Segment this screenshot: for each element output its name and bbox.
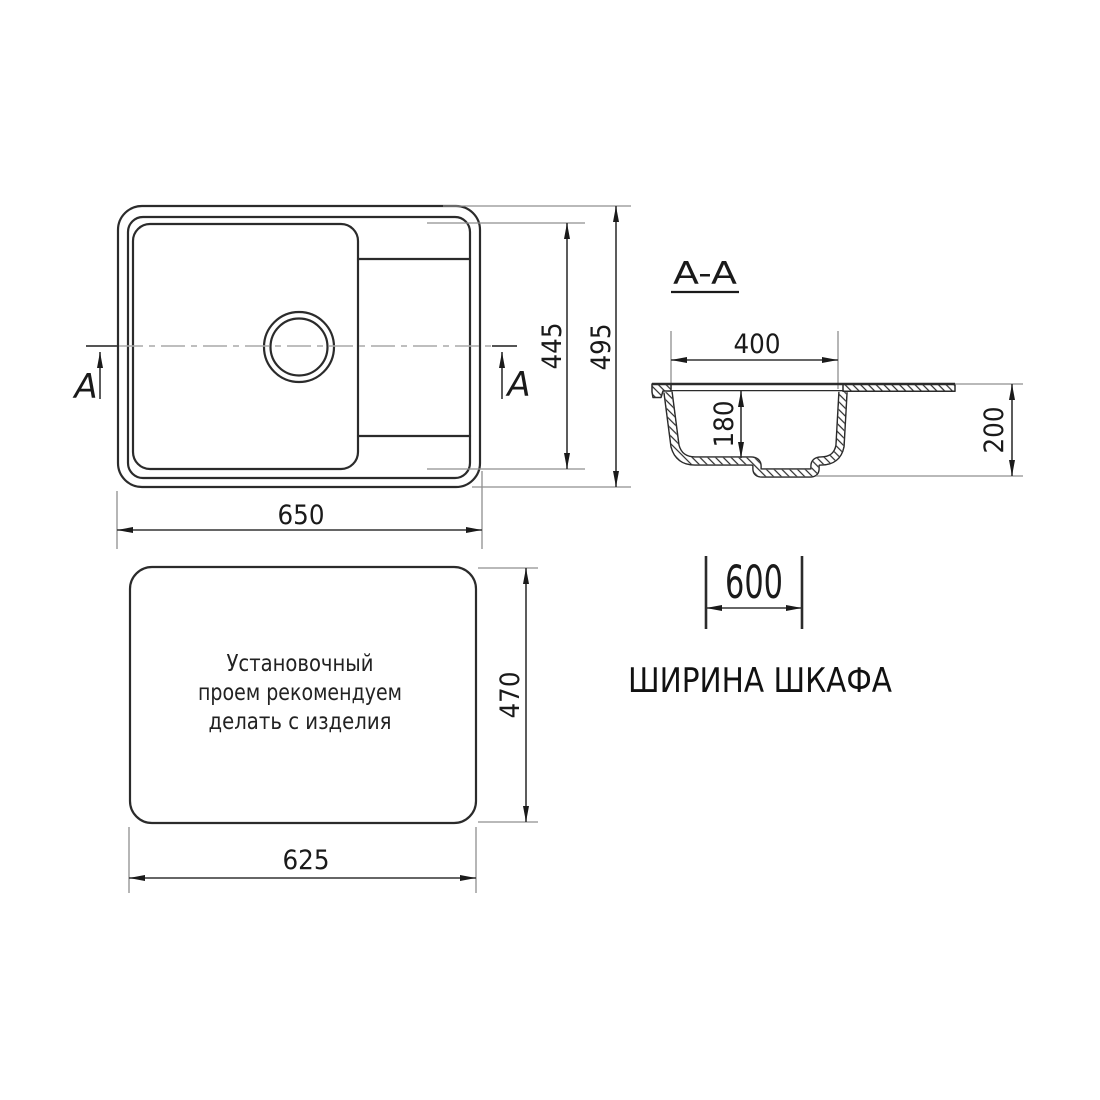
bowl-wall-hatch	[668, 392, 843, 473]
dim-cutout-width: 625	[129, 827, 476, 893]
dim-overall-width: 650	[117, 471, 482, 549]
dim-cutout-width-label: 625	[283, 845, 330, 876]
cutout-note-line1: Установочный	[227, 649, 374, 677]
cabinet-width-indicator: 600 ШИРИНА ШКАФА	[628, 556, 892, 701]
cutout-view: Установочный проем рекомендуем делать с …	[129, 567, 538, 893]
dim-overall-height-label: 200	[979, 407, 1010, 454]
sink-rim	[128, 217, 470, 478]
plan-view: A A 445 495 650	[72, 206, 631, 549]
dim-overall-depth-label: 495	[586, 324, 617, 371]
dim-bowl-top-width: 400	[671, 329, 838, 389]
drain-circle-outer	[264, 312, 334, 382]
cutout-note-line2: проем рекомендуем	[198, 678, 402, 706]
section-letter-right: A	[505, 365, 530, 405]
dim-bowl-depth-label: 180	[709, 401, 740, 448]
cabinet-width-caption: ШИРИНА ШКАФА	[628, 661, 892, 701]
cabinet-width-label: 600	[725, 556, 783, 609]
drawing-canvas: A A 445 495 650 A-A	[0, 0, 1100, 1100]
dim-overall-width-label: 650	[278, 500, 325, 531]
sink-technical-drawing: A A 445 495 650 A-A	[0, 0, 1100, 1100]
section-letter-left: A	[72, 367, 97, 407]
dim-bowl-depth: 180	[709, 391, 741, 458]
section-title: A-A	[673, 256, 737, 292]
cutout-note-line3: делать с изделия	[209, 707, 392, 735]
sink-cross-section	[652, 384, 955, 473]
drain-circle-inner	[271, 319, 328, 376]
dim-cutout-depth-label: 470	[495, 672, 526, 719]
section-view: A-A 400 180 200	[652, 256, 1023, 476]
dim-cutout-depth: 470	[478, 568, 538, 822]
dim-bowl-top-width-label: 400	[734, 329, 781, 360]
dim-bowl-length-label: 445	[537, 323, 568, 370]
